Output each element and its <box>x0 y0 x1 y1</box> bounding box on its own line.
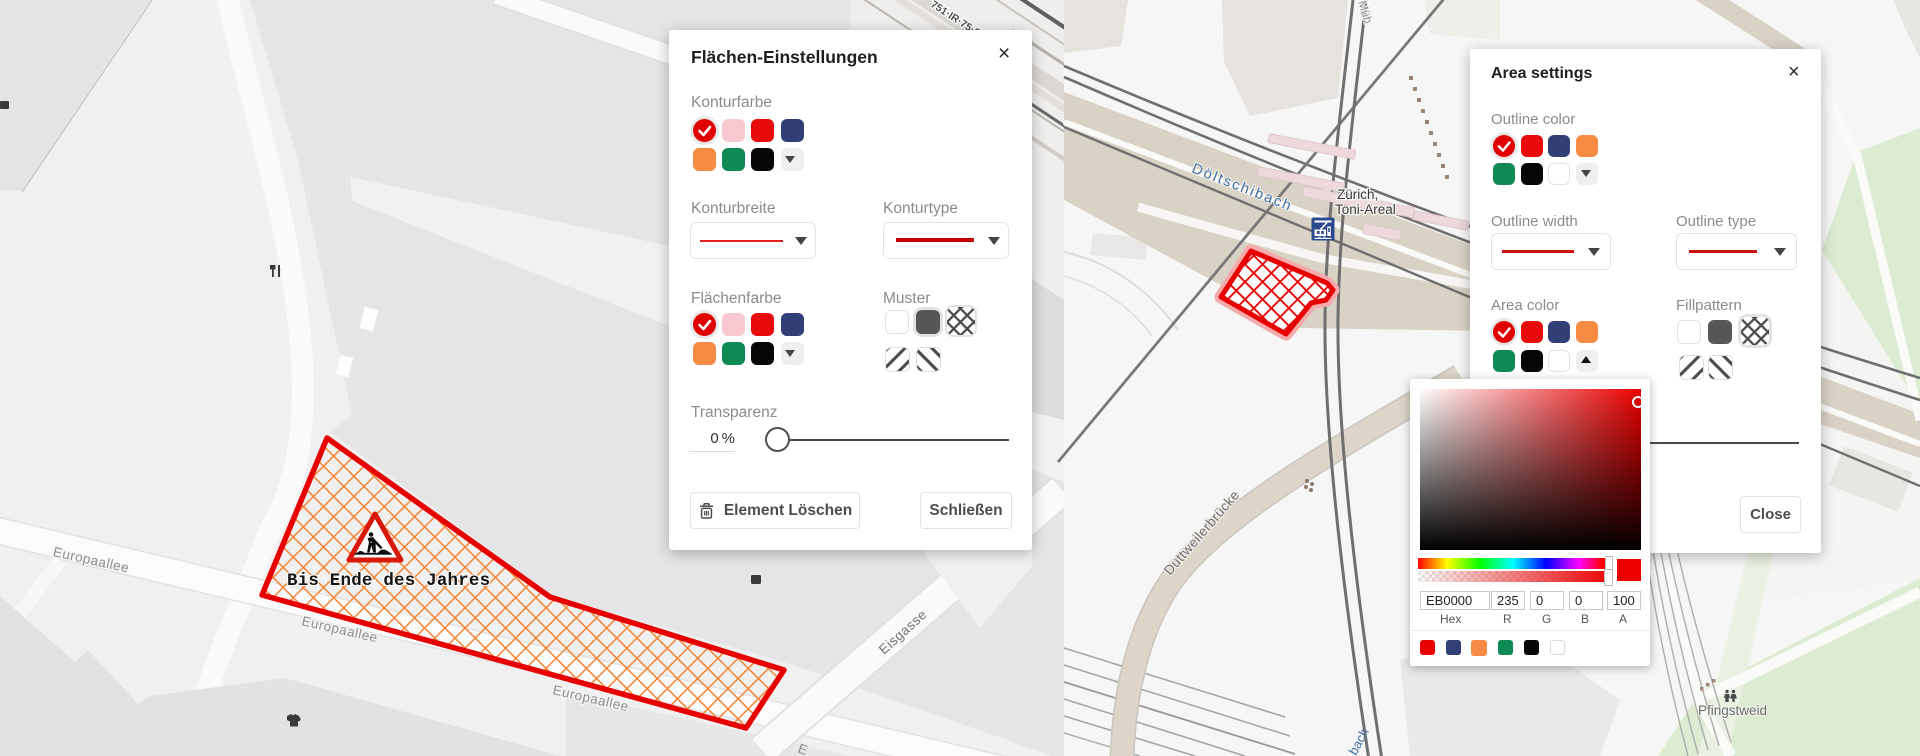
svg-text:Toni-Areal: Toni-Areal <box>1335 202 1396 217</box>
svg-text:Pfingstweid: Pfingstweid <box>1698 703 1767 718</box>
svg-text:Zürich,: Zürich, <box>1337 187 1378 202</box>
svg-text:Bis Ende des Jahres: Bis Ende des Jahres <box>287 571 490 591</box>
